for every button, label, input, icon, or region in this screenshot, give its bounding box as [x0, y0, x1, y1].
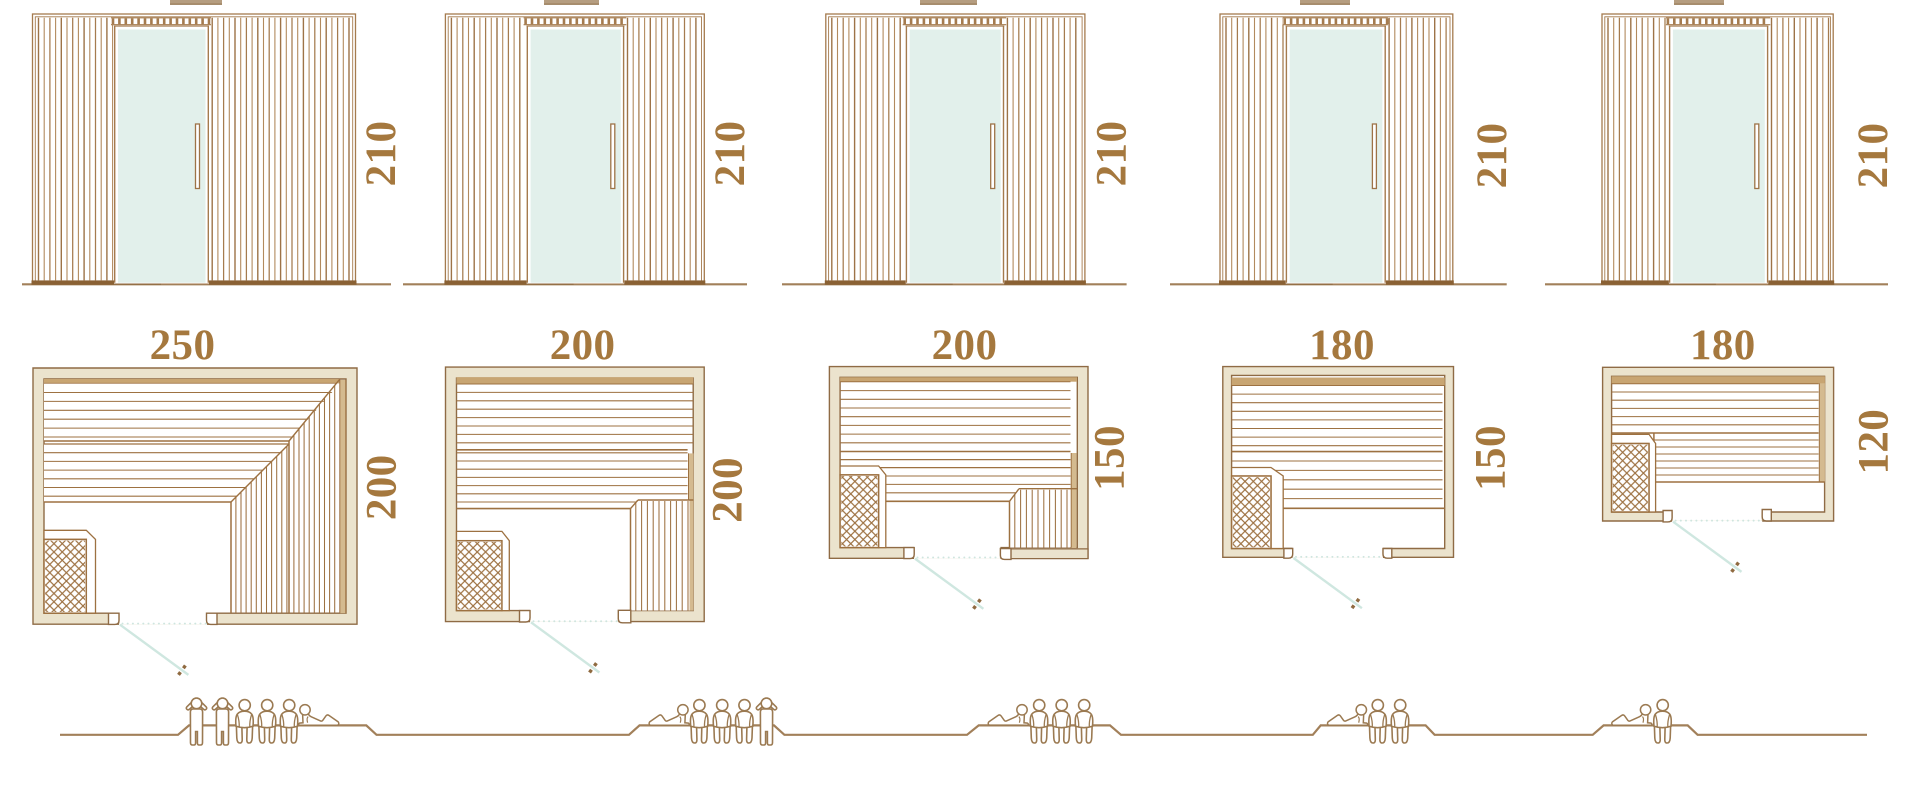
svg-text:180: 180 [1690, 322, 1756, 369]
svg-text:120: 120 [1850, 409, 1897, 475]
svg-text:180: 180 [1309, 322, 1375, 369]
svg-text:150: 150 [1467, 425, 1514, 491]
svg-text:200: 200 [550, 322, 616, 369]
svg-text:210: 210 [1469, 123, 1516, 189]
svg-text:250: 250 [150, 322, 216, 369]
svg-text:200: 200 [932, 322, 998, 369]
svg-text:210: 210 [1850, 123, 1897, 189]
svg-text:200: 200 [704, 457, 751, 523]
svg-text:210: 210 [358, 121, 405, 187]
svg-text:210: 210 [1088, 121, 1135, 187]
svg-text:200: 200 [359, 454, 406, 520]
svg-text:210: 210 [707, 121, 754, 187]
svg-text:150: 150 [1086, 425, 1133, 491]
